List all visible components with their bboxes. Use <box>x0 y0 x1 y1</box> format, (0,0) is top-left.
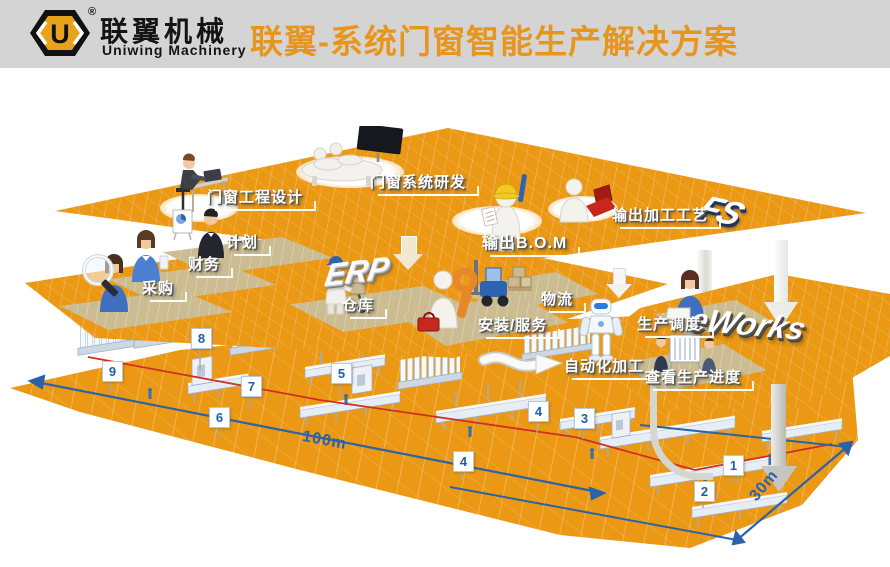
station-label-output-process: 输出加工工艺 <box>612 204 708 225</box>
station-label-logistics: 物流 <box>541 288 573 309</box>
station-label-window-system-rd: 门窗系统研发 <box>370 171 466 192</box>
solution-diagram: U ® 联翼机械 Uniwing Machinery 联翼-系统门窗智能生产解决… <box>0 0 890 567</box>
station-label-view-production-progress: 查看生产进度 <box>645 366 741 387</box>
station-label-procurement: 采购 <box>142 277 174 298</box>
figure-installer <box>416 264 480 336</box>
station-label-automated-machining: 自动化加工 <box>564 355 644 376</box>
floor-marker: 3 <box>574 408 595 429</box>
floor-marker: 8 <box>191 328 212 349</box>
flow-arrow-curve-right <box>478 346 566 382</box>
figure-procurement <box>76 246 140 314</box>
floor-marker: 4 <box>453 451 474 472</box>
station-label-output-bom: 输出B.O.M <box>482 229 567 253</box>
station-label-install-service: 安装/服务 <box>478 314 547 335</box>
floor-marker: 2 <box>694 481 715 502</box>
floor-marker: 7 <box>241 376 262 397</box>
station-label-warehouse: 仓库 <box>342 294 374 315</box>
floor-marker: 5 <box>331 363 352 384</box>
floor-marker: 6 <box>209 407 230 428</box>
floor-marker: 9 <box>102 361 123 382</box>
station-label-finance: 财务 <box>188 253 220 274</box>
floor-marker: 1 <box>723 455 744 476</box>
station-label-window-engineering-design: 门窗工程设计 <box>207 186 303 207</box>
station-label-plan: 计划 <box>226 231 258 252</box>
floor-marker: 4 <box>528 401 549 422</box>
figure-process-engineer <box>546 176 620 226</box>
station-label-production-scheduling: 生产调度 <box>637 313 701 334</box>
